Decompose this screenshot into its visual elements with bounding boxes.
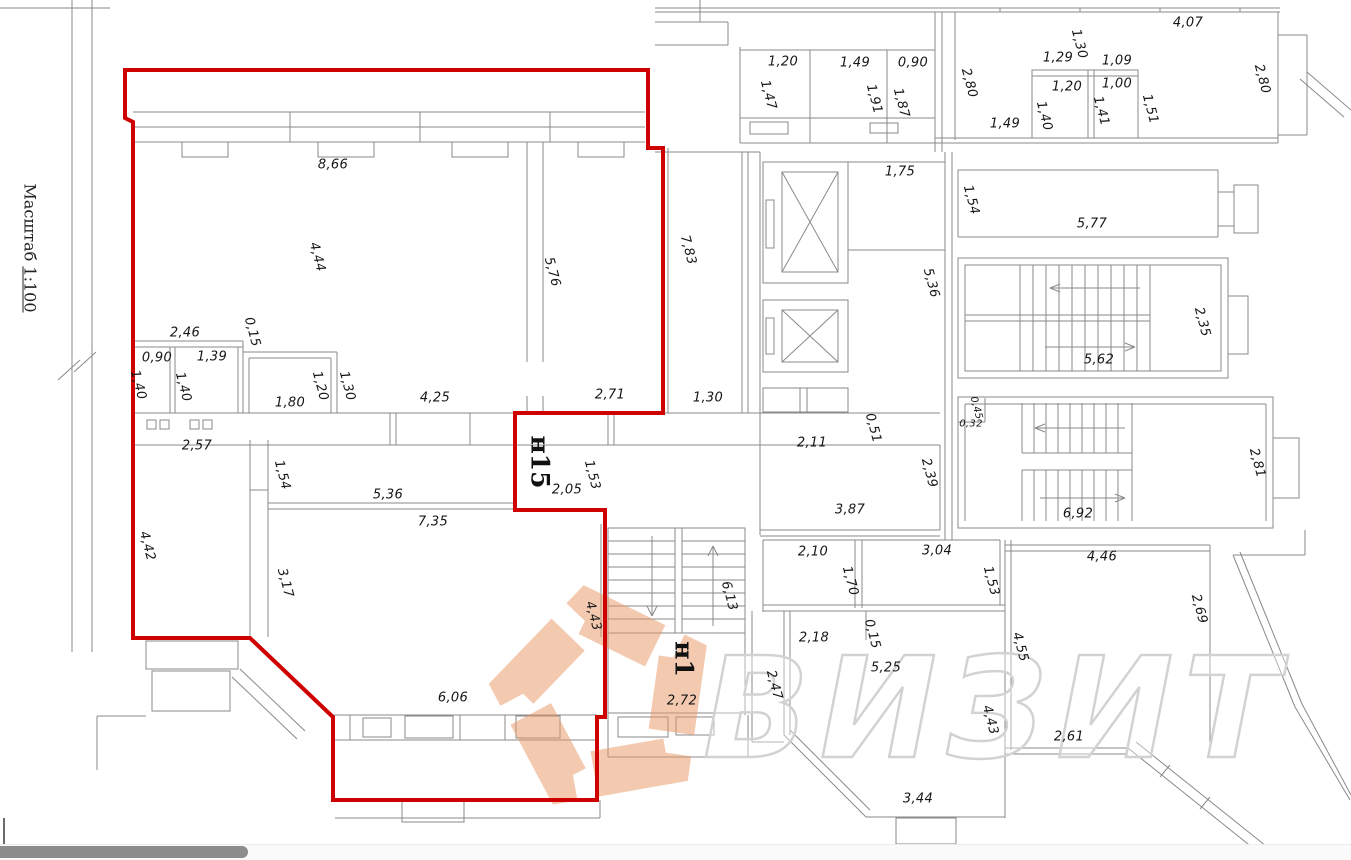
dimension-label: 1,70 xyxy=(839,564,861,597)
dimension-label: 1,39 xyxy=(197,350,227,365)
scale-value: 1:100 xyxy=(21,266,40,312)
dimension-label: 2,57 xyxy=(182,439,212,454)
dimension-label: 1,80 xyxy=(275,396,305,411)
dimension-label: 3,17 xyxy=(274,566,296,599)
dimension-label: 4,46 xyxy=(1087,550,1117,565)
dimension-label: 1,30 xyxy=(1068,27,1090,60)
dimension-label: 5,62 xyxy=(1084,353,1114,368)
dimension-label: 1,87 xyxy=(890,86,912,119)
dimension-labels-layer: 8,664,445,767,832,460,150,901,391,401,40… xyxy=(0,0,1351,860)
dimension-label: 0,90 xyxy=(898,56,928,71)
dimension-label: 1,29 xyxy=(1043,51,1073,66)
dimension-label: 1,20 xyxy=(768,55,798,70)
selected-unit-outline xyxy=(0,0,1351,860)
dimension-label: 1,49 xyxy=(840,56,870,71)
dimension-label: 7,35 xyxy=(418,515,448,530)
dimension-label: 2,18 xyxy=(799,631,829,646)
dimension-label: 5,36 xyxy=(920,266,942,299)
watermark-logo xyxy=(0,0,1351,860)
dimension-label: 4,43 xyxy=(582,599,604,632)
dimension-label: 1,51 xyxy=(1139,92,1161,125)
page-edge-tick xyxy=(3,818,5,844)
dimension-label: 7,83 xyxy=(677,233,699,266)
dimension-label: 2,81 xyxy=(1246,446,1268,479)
dimension-label: 1,30 xyxy=(693,391,723,406)
dimension-label: 1,49 xyxy=(990,117,1020,132)
dimension-label: 2,61 xyxy=(1054,730,1084,745)
dimension-label: 1,09 xyxy=(1102,54,1132,69)
dimension-label: 3,04 xyxy=(922,544,952,559)
dimension-label: 1,41 xyxy=(1090,94,1112,127)
dimension-label: 1,53 xyxy=(581,458,603,491)
dimension-label: 1,47 xyxy=(757,78,779,111)
dimension-label: 5,25 xyxy=(871,661,901,676)
dimension-label: 1,40 xyxy=(1033,99,1055,132)
dimension-label: 6,06 xyxy=(438,691,468,706)
dimension-label: 2,35 xyxy=(1191,305,1213,338)
dimension-label: 1,54 xyxy=(960,183,982,216)
dimension-label: 4,42 xyxy=(136,529,158,562)
dimension-label: 4,43 xyxy=(979,703,1001,736)
dimension-label: 4,55 xyxy=(1009,630,1031,663)
dimension-label: 2,69 xyxy=(1188,592,1210,625)
dimension-label: 1,20 xyxy=(309,369,331,402)
dimension-label: 1,91 xyxy=(863,82,885,115)
dimension-label: 3,44 xyxy=(903,792,933,807)
scale-label: Масштаб 1:100 xyxy=(21,184,40,313)
dimension-label: 1,00 xyxy=(1102,77,1132,92)
dimension-label: 2,05 xyxy=(552,483,582,498)
dimension-label: 2,46 xyxy=(170,326,200,341)
dimension-label: 8,66 xyxy=(318,158,348,173)
room-label: н15 xyxy=(526,435,555,488)
horizontal-scrollbar-thumb[interactable] xyxy=(0,846,248,858)
dimension-label: 5,36 xyxy=(373,488,403,503)
horizontal-scrollbar[interactable] xyxy=(0,844,1351,860)
dimension-label: 2,39 xyxy=(918,456,940,489)
dimension-label: 0,32 xyxy=(959,419,982,430)
floor-plan-page: ВИЗИТ 8,664,445,767,832,460,150,901,391,… xyxy=(0,0,1351,860)
dimension-label: 5,76 xyxy=(541,255,563,288)
dimension-label: 0,45 xyxy=(968,395,985,421)
dimension-label: 1,30 xyxy=(336,369,358,402)
dimension-label: 3,87 xyxy=(835,503,865,518)
dimension-label: 1,53 xyxy=(980,564,1002,597)
floor-plan-drawing xyxy=(0,0,1351,860)
room-label: н1 xyxy=(670,641,699,677)
dimension-label: 5,77 xyxy=(1077,217,1107,232)
dimension-label: 1,40 xyxy=(127,368,149,401)
dimension-label: 2,80 xyxy=(958,66,980,99)
dimension-label: 4,07 xyxy=(1173,16,1203,31)
dimension-label: 6,92 xyxy=(1063,507,1093,522)
dimension-label: 2,71 xyxy=(595,388,625,403)
watermark-text: ВИЗИТ xyxy=(703,628,1289,791)
dimension-label: 6,13 xyxy=(718,579,740,612)
dimension-label: 0,51 xyxy=(862,411,884,444)
dimension-label: 1,75 xyxy=(885,165,915,180)
dimension-label: 2,11 xyxy=(797,436,827,451)
dimension-label: 0,90 xyxy=(142,351,172,366)
dimension-label: 1,54 xyxy=(271,458,293,491)
dimension-label: 4,25 xyxy=(420,391,450,406)
dimension-label: 1,40 xyxy=(172,370,194,403)
dimension-label: 0,15 xyxy=(241,315,263,348)
dimension-label: 2,10 xyxy=(798,545,828,560)
dimension-label: 4,44 xyxy=(306,240,328,273)
dimension-label: 2,47 xyxy=(763,668,785,701)
dimension-label: 1,20 xyxy=(1052,80,1082,95)
scale-word: Масштаб xyxy=(21,184,40,262)
dimension-label: 2,72 xyxy=(667,694,697,709)
dimension-label: 0,15 xyxy=(861,617,883,650)
dimension-label: 2,80 xyxy=(1251,62,1273,95)
